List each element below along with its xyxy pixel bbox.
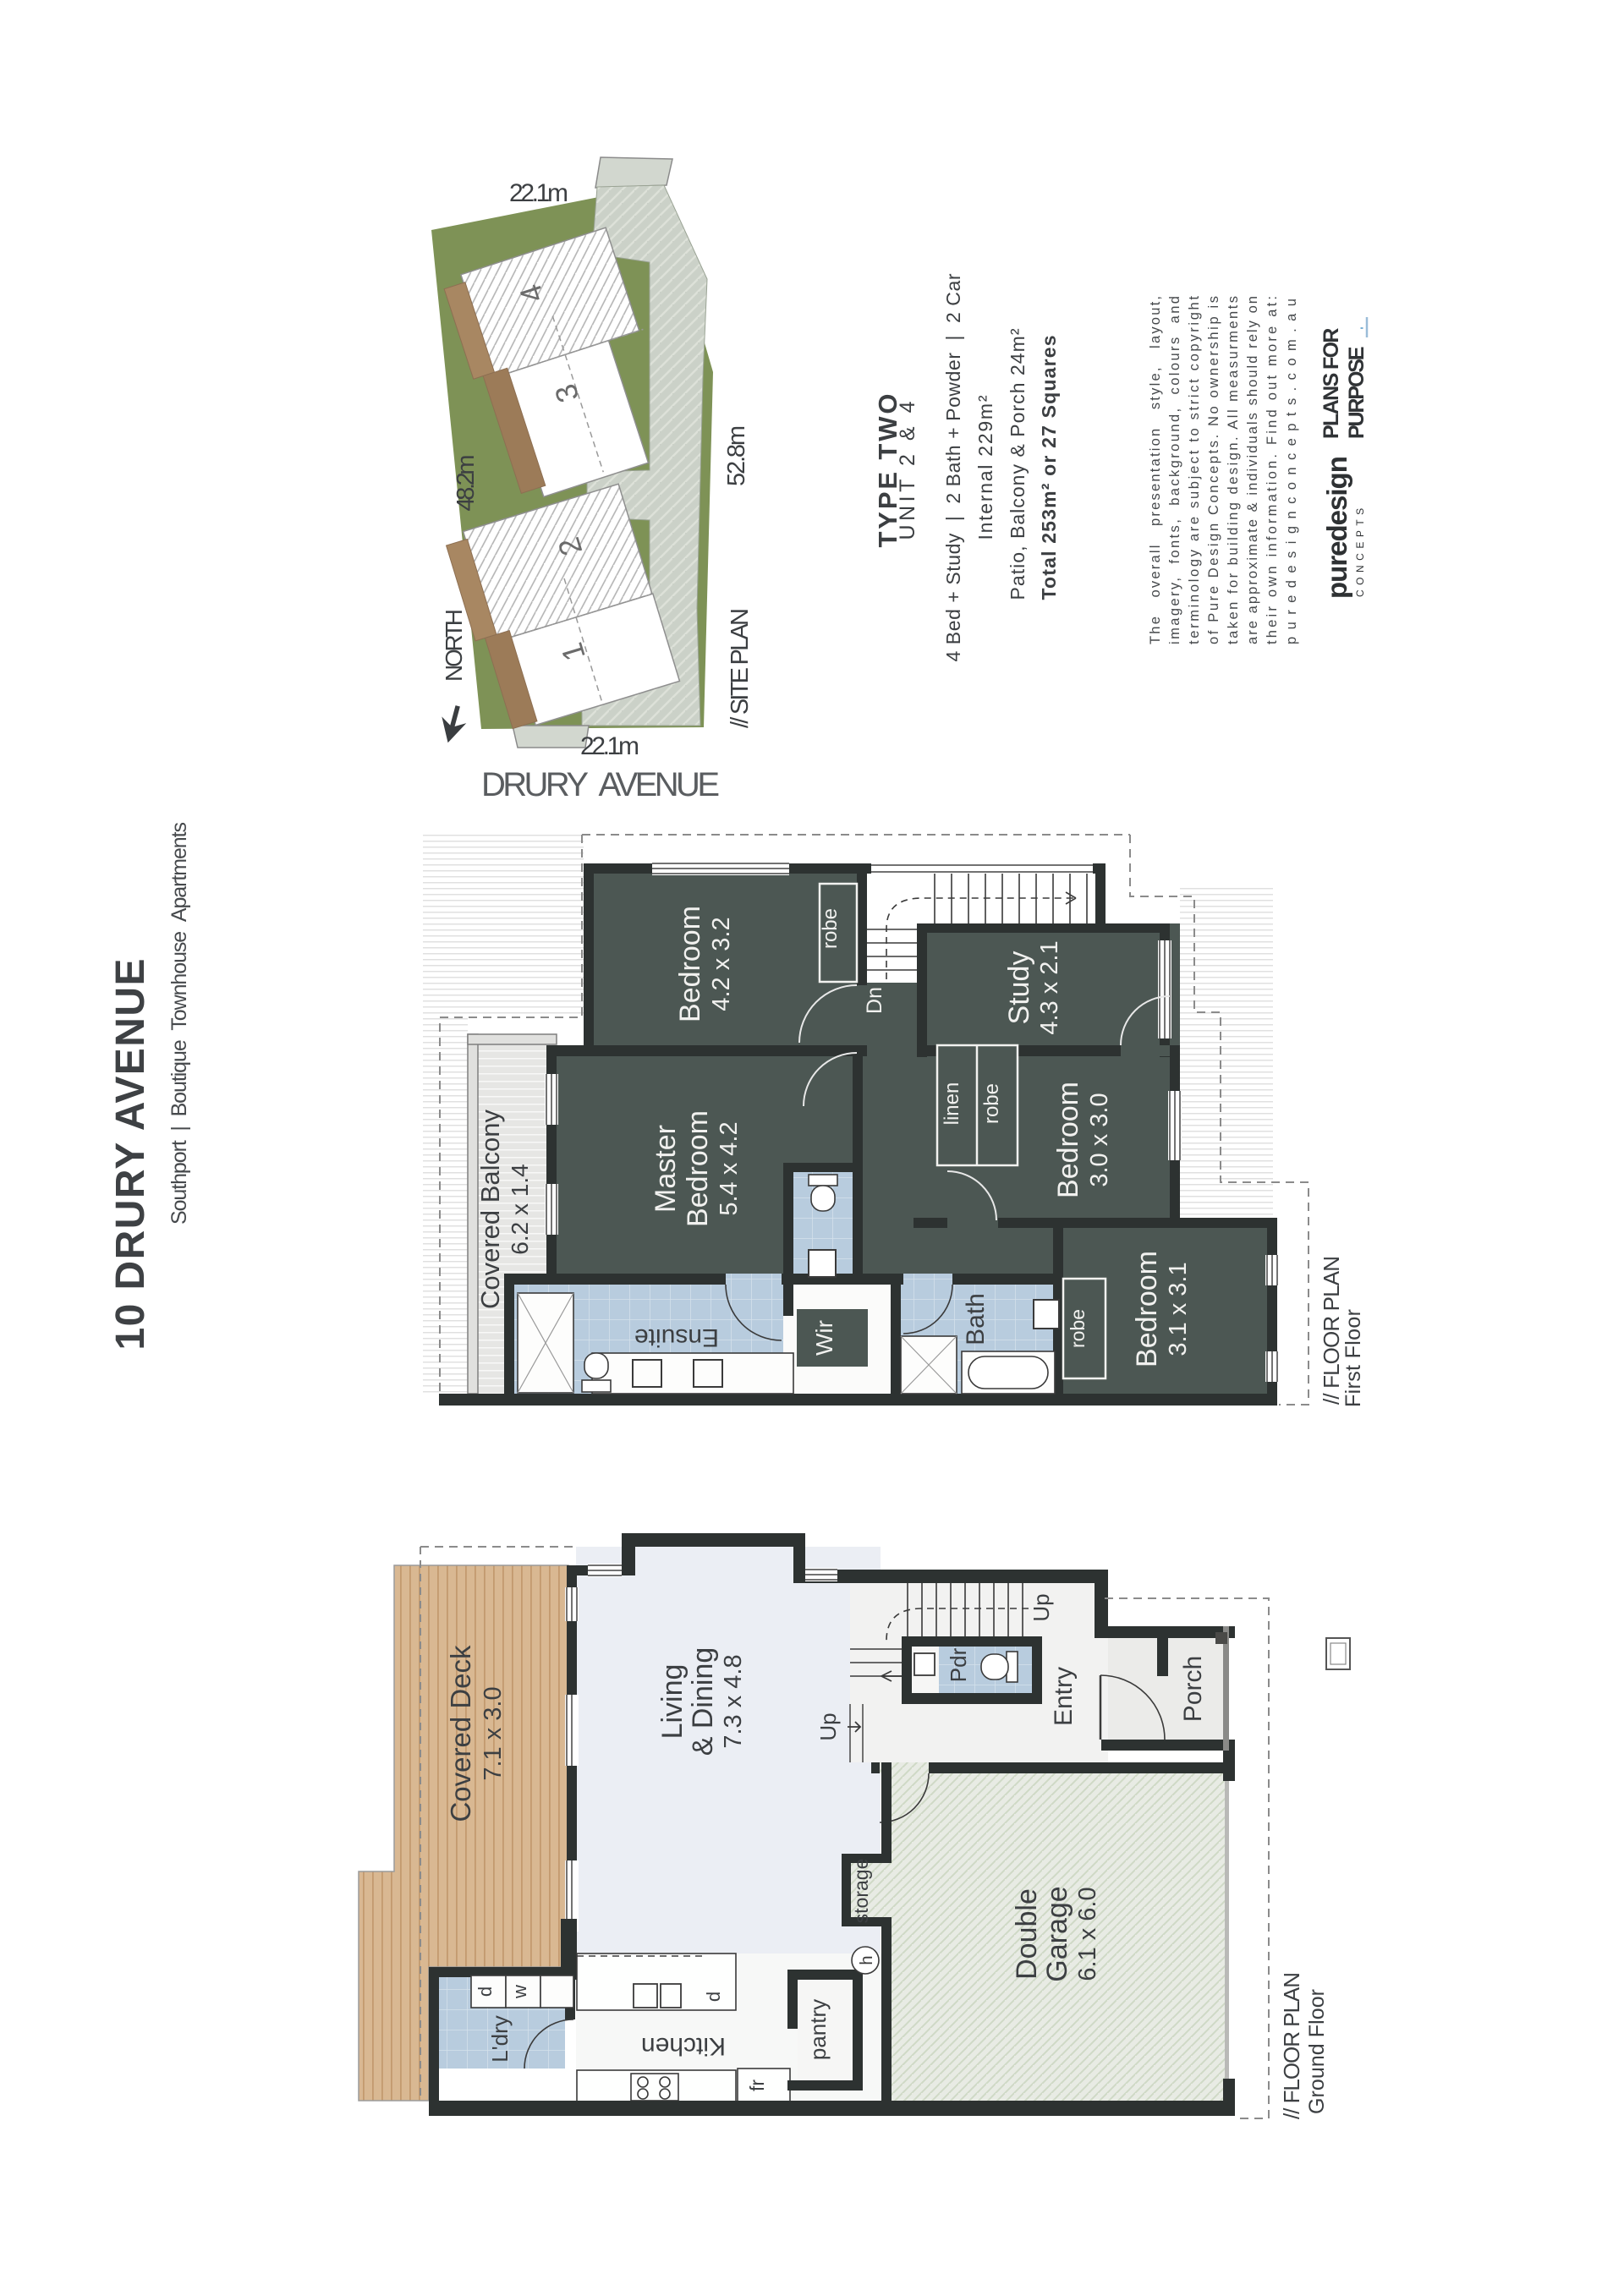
svg-text:Ensuite: Ensuite — [634, 1323, 719, 1351]
svg-text:Master: Master — [650, 1125, 682, 1213]
svg-text:Pdr: Pdr — [946, 1647, 971, 1682]
svg-text:Kitchen: Kitchen — [641, 2032, 726, 2060]
svg-text:Entry: Entry — [1050, 1667, 1078, 1726]
svg-text:Dn: Dn — [863, 987, 886, 1014]
svg-text:PLANS FOR: PLANS FOR — [1319, 327, 1343, 439]
svg-text:Ground Floor: Ground Floor — [1305, 1989, 1329, 2114]
svg-text:Southport | Boutique Townho: Southport | Boutique Townhouse Apartment… — [167, 822, 191, 1225]
svg-text:Up: Up — [1029, 1593, 1054, 1621]
svg-text:Bedroom: Bedroom — [1131, 1251, 1163, 1367]
svg-text:terminology are subject to str: terminology are subject to strict copyri… — [1187, 296, 1202, 644]
svg-text:puredesign: puredesign — [1321, 457, 1352, 599]
svg-text:h: h — [858, 1955, 876, 1964]
svg-text:3.1 x 3.1: 3.1 x 3.1 — [1165, 1262, 1192, 1356]
svg-text:linen: linen — [941, 1082, 963, 1126]
svg-text:7.3 x 4.8: 7.3 x 4.8 — [720, 1654, 747, 1748]
svg-text:Bedroom: Bedroom — [674, 906, 706, 1022]
svg-text:Patio, Balcony & Porch 24m²: Patio, Balcony & Porch 24m² — [1007, 328, 1029, 600]
svg-text:Total 253m² or 27 Squares: Total 253m² or 27 Squares — [1038, 336, 1060, 600]
svg-text:22.1m: 22.1m — [509, 179, 568, 207]
svg-text:imagery, fonts, background,: imagery, fonts, background, colours and — [1167, 296, 1182, 644]
svg-text:Covered Deck: Covered Deck — [445, 1645, 476, 1822]
svg-text:5.4 x 4.2: 5.4 x 4.2 — [716, 1121, 743, 1215]
svg-text:4.3 x 2.1: 4.3 x 2.1 — [1036, 940, 1063, 1034]
svg-text:4.2 x 3.2: 4.2 x 3.2 — [708, 917, 735, 1011]
svg-text:storage: storage — [850, 1859, 872, 1924]
svg-text:52.8m: 52.8m — [723, 425, 750, 486]
svg-text:Up: Up — [815, 1712, 841, 1740]
svg-text:& Dining: & Dining — [687, 1647, 719, 1756]
svg-text:Garage: Garage — [1041, 1886, 1073, 1981]
svg-text:robe: robe — [819, 908, 842, 949]
svg-text:// SITE PLAN: // SITE PLAN — [727, 608, 754, 728]
svg-text:6.1 x 6.0: 6.1 x 6.0 — [1074, 1887, 1101, 1981]
svg-text:3.0 x 3.0: 3.0 x 3.0 — [1086, 1093, 1113, 1186]
svg-text:fr: fr — [746, 2080, 768, 2091]
svg-text:d: d — [475, 1986, 496, 1997]
svg-text:PURPOSE: PURPOSE — [1345, 346, 1369, 439]
svg-text:Internal 229m²: Internal 229m² — [974, 395, 996, 540]
svg-text:The overall presentation: The overall presentation style, layout, — [1148, 296, 1163, 644]
svg-text:22.1m: 22.1m — [580, 732, 639, 760]
svg-text:robe: robe — [980, 1083, 1003, 1124]
svg-text:First Floor: First Floor — [1341, 1309, 1365, 1407]
svg-text:48.2m: 48.2m — [453, 455, 480, 512]
svg-text:of Pure Design Concepts. No ow: of Pure Design Concepts. No ownership is — [1206, 296, 1221, 644]
svg-text:NORTH: NORTH — [441, 609, 467, 682]
svg-text:Bedroom: Bedroom — [682, 1110, 714, 1227]
svg-text:robe: robe — [1067, 1309, 1089, 1348]
svg-text:Wir: Wir — [811, 1320, 837, 1356]
svg-text:// FLOOR PLAN: // FLOOR PLAN — [1279, 1972, 1304, 2119]
svg-text:Double: Double — [1011, 1888, 1043, 1980]
svg-text:L'dry: L'dry — [487, 2015, 513, 2063]
svg-text:// FLOOR PLAN: // FLOOR PLAN — [1319, 1256, 1344, 1405]
svg-text:d: d — [703, 1992, 724, 2002]
svg-text:Covered Balcony: Covered Balcony — [475, 1109, 505, 1309]
svg-text:DRURY AVENUE: DRURY AVENUE — [481, 766, 720, 803]
svg-text:pantry: pantry — [805, 1999, 831, 2060]
svg-text:Bath: Bath — [962, 1293, 990, 1345]
svg-text:Porch: Porch — [1179, 1656, 1207, 1722]
svg-text:Living: Living — [656, 1664, 689, 1740]
svg-text:10 DRURY AVENUE: 10 DRURY AVENUE — [108, 957, 153, 1351]
svg-text:are approximate & individuals: are approximate & individuals should rel… — [1245, 296, 1260, 644]
svg-text:w: w — [509, 1985, 530, 1999]
svg-text:4 Bed + Study | 2 Bath + Pow: 4 Bed + Study | 2 Bath + Powder | 2 Car — [942, 273, 964, 661]
svg-text:6.2 x 1.4: 6.2 x 1.4 — [507, 1164, 533, 1254]
svg-text:UNIT 2 & 4: UNIT 2 & 4 — [896, 401, 919, 540]
svg-text:taken for building design. All: taken for building design. All measurmen… — [1226, 296, 1241, 644]
svg-text:Study: Study — [1003, 951, 1035, 1025]
svg-text:Bedroom: Bedroom — [1052, 1082, 1084, 1198]
svg-text:CONCEPTS: CONCEPTS — [1354, 503, 1366, 597]
svg-text:7.1 x 3.0: 7.1 x 3.0 — [480, 1686, 507, 1780]
